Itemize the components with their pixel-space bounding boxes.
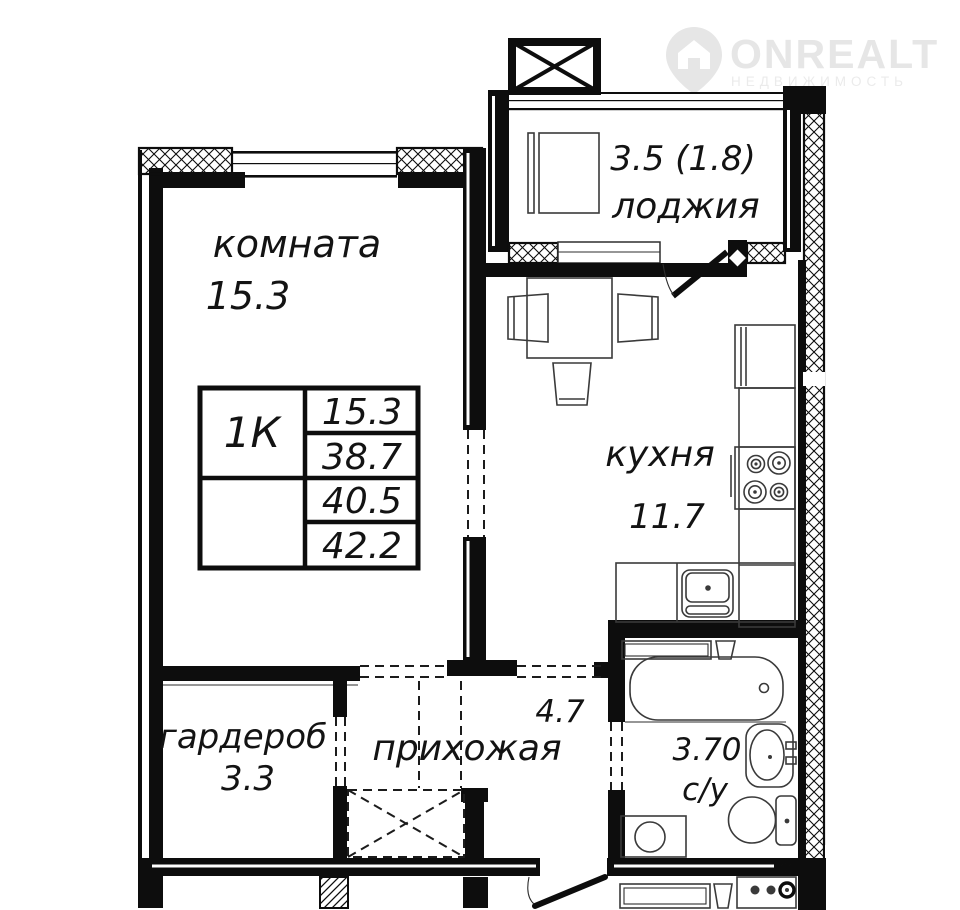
loggia-cabinet-side <box>528 133 534 213</box>
wall-segment <box>138 150 142 908</box>
wall-segment <box>149 168 163 880</box>
washing-machine <box>621 816 686 857</box>
wall-cavity <box>787 110 790 248</box>
floorplan-drawing: ONREALT НЕДВИЖИМОСТЬ <box>0 0 960 910</box>
brand-name: ONREALT <box>730 31 939 77</box>
label-wardrobe: гардероб <box>159 717 327 757</box>
wall-segment <box>461 788 488 802</box>
area-loggia: 3.5 (1.8) <box>610 139 755 179</box>
door-opening-wardrobe <box>336 717 345 786</box>
exterior-wall-hatched <box>804 112 824 882</box>
wall-segment <box>486 263 730 277</box>
burner <box>744 481 766 503</box>
bathtub <box>625 657 786 722</box>
wall-hatched <box>778 860 794 875</box>
label-hallway: прихожая <box>372 728 561 769</box>
loggia-cabinet <box>539 133 599 213</box>
onrealt-logo: ONREALT НЕДВИЖИМОСТЬ <box>666 27 939 94</box>
exterior-wall-hatched <box>139 148 232 174</box>
ventilation-shaft <box>512 42 597 91</box>
balcony-door-pier <box>728 240 747 277</box>
wall-cavity <box>467 541 470 657</box>
chair <box>618 294 658 342</box>
wall-segment <box>488 90 509 252</box>
label-loggia: лоджия <box>611 186 759 227</box>
wall-segment <box>465 802 484 858</box>
dining-table <box>527 278 612 358</box>
area-bathroom: 3.70 <box>672 732 741 768</box>
area-hallway: 4.7 <box>535 694 585 730</box>
area-value: 42.2 <box>322 526 402 567</box>
unit-area-table: 1К 15.3 38.7 40.5 42.2 <box>200 388 418 568</box>
stove <box>731 447 795 509</box>
wall-cavity <box>152 865 536 868</box>
label-living-room: комната <box>213 222 381 266</box>
location-pin-house-icon <box>666 27 722 94</box>
wall-cavity <box>492 96 495 246</box>
wall-segment <box>594 662 608 678</box>
wall-segment <box>798 260 806 882</box>
burner <box>768 452 790 474</box>
washbasin <box>746 724 796 787</box>
wall-segment <box>140 876 163 908</box>
label-kitchen: кухня <box>605 434 715 475</box>
area-kitchen: 11.7 <box>629 497 705 537</box>
closet-zone-x-box <box>348 790 464 857</box>
wall-segment <box>333 681 347 717</box>
wall-segment <box>608 790 625 858</box>
burner <box>771 484 788 501</box>
window-balcony-block <box>558 242 660 263</box>
wall-notch <box>803 372 825 386</box>
area-wardrobe: 3.3 <box>221 759 275 799</box>
door-opening-bathroom <box>611 722 622 790</box>
door-opening-room-kitchen <box>468 430 484 537</box>
area-living-room: 15.3 <box>206 274 291 318</box>
wall-segment <box>149 666 360 681</box>
wall-segment <box>783 104 801 252</box>
floorplan-canvas: ONREALT НЕДВИЖИМОСТЬ <box>0 0 960 910</box>
toilet <box>729 796 797 845</box>
fridge <box>735 325 795 388</box>
wall-segment <box>163 172 245 188</box>
wall-cavity <box>614 865 774 868</box>
entrance-door <box>528 877 605 906</box>
corridor-counter <box>620 884 732 908</box>
chair <box>508 294 548 342</box>
unit-type: 1К <box>224 408 283 457</box>
wall-hatched <box>747 243 785 263</box>
kitchen-sink <box>682 570 733 617</box>
area-value: 38.7 <box>322 437 402 478</box>
corridor-panel <box>737 877 796 908</box>
wall-segment <box>798 858 826 910</box>
wall-segment <box>447 660 517 676</box>
window-living-room <box>232 151 397 178</box>
wall-segment <box>333 786 347 858</box>
wall-segment <box>463 877 488 908</box>
wall-segment <box>463 537 486 661</box>
wall-notch <box>825 845 829 858</box>
area-value: 15.3 <box>322 392 402 433</box>
label-bathroom: с/у <box>682 772 728 808</box>
wall-cavity <box>467 153 470 425</box>
burner <box>748 456 765 473</box>
chair <box>553 363 591 405</box>
column-hatched <box>320 877 348 908</box>
area-value: 40.5 <box>322 481 402 522</box>
wall-segment <box>463 148 486 430</box>
wall-hatched <box>509 243 558 263</box>
